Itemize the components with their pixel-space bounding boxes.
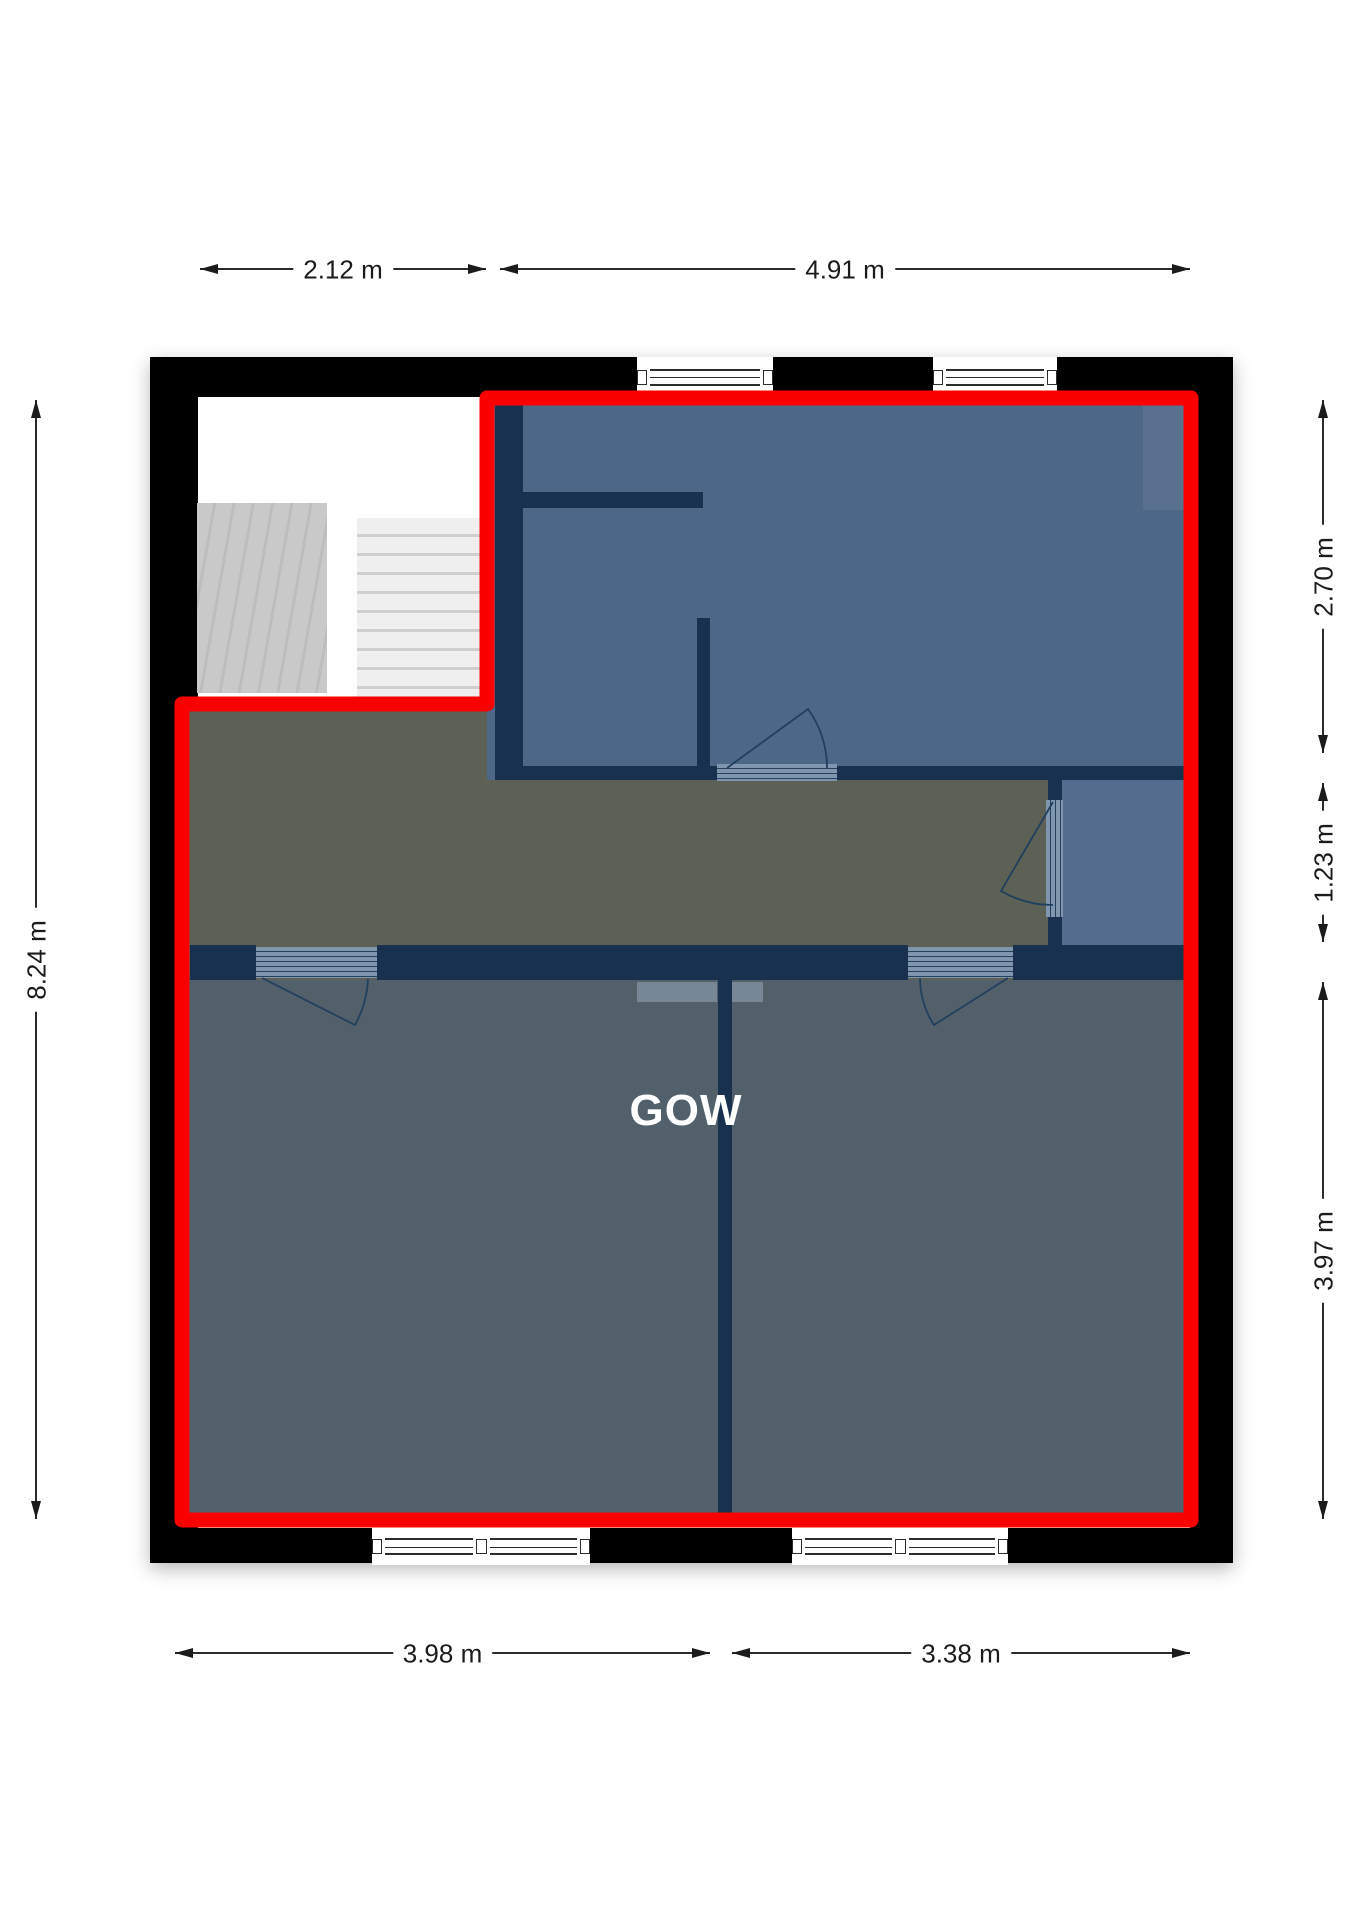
stairs-right-flight [357, 518, 480, 697]
wall-stub-vertical [697, 618, 710, 780]
window-glazing [946, 369, 1044, 386]
arrow-up-icon [1318, 783, 1328, 801]
wall-closet-left-top [1048, 780, 1062, 800]
arrow-left-icon [175, 1648, 193, 1658]
window-mullion [476, 1539, 487, 1554]
arrow-right-icon [1172, 264, 1190, 274]
arrow-right-icon [468, 264, 486, 274]
threshold-right [732, 982, 763, 1002]
arrow-left-icon [732, 1648, 750, 1658]
door-sill-upper-room [717, 764, 837, 781]
arrow-up-icon [31, 400, 41, 418]
dimension-label: 3.38 m [911, 1637, 1011, 1672]
arrow-right-icon [1172, 1648, 1190, 1658]
dimension-label: 3.97 m [1307, 1199, 1342, 1303]
window-top-2 [933, 357, 1057, 397]
wall-hall-bottom-seg3 [1013, 945, 1191, 980]
dimension-top-right: 4.91 m [500, 268, 1190, 270]
window-jamb [1047, 370, 1057, 385]
stairs-left-flight [197, 503, 327, 693]
arrow-left-icon [500, 264, 518, 274]
upper-room [487, 397, 1191, 780]
arrow-right-icon [692, 1648, 710, 1658]
dimension-right-upper: 2.70 m [1322, 400, 1324, 753]
dimension-right-middle: 1.23 m [1322, 783, 1324, 942]
floorplan-canvas: GOW 2.12 m 4.91 m 3.98 m 3.38 m 8.24 m 2… [0, 0, 1358, 1920]
window-glazing [385, 1538, 473, 1555]
wall-hall-bottom-seg2 [377, 945, 908, 980]
dimension-right-lower: 3.97 m [1322, 982, 1324, 1519]
arrow-down-icon [1318, 924, 1328, 942]
window-glazing [650, 369, 760, 386]
arrow-up-icon [1318, 400, 1328, 418]
threshold-left [637, 982, 717, 1002]
dimension-label: 4.91 m [795, 253, 895, 288]
closet-room [1062, 780, 1191, 945]
window-jamb [933, 370, 943, 385]
room-label: GOW [630, 1086, 743, 1136]
dimension-label: 1.23 m [1307, 811, 1342, 915]
wall-lower-rooms-divider [718, 980, 732, 1513]
door-sill-lower-right [908, 947, 1013, 978]
dimension-bottom-left: 3.98 m [175, 1652, 710, 1654]
dimension-bottom-right: 3.38 m [732, 1652, 1190, 1654]
dimension-label: 8.24 m [20, 908, 55, 1012]
wall-stub-horizontal [523, 492, 703, 508]
radiator-panel [1143, 405, 1187, 510]
window-jamb [763, 370, 773, 385]
window-jamb [580, 1539, 590, 1554]
wall-hall-bottom-seg1 [190, 945, 256, 980]
window-jamb [998, 1539, 1008, 1554]
lower-rooms [182, 980, 1191, 1520]
arrow-down-icon [1318, 1501, 1328, 1519]
window-top-1 [637, 357, 773, 397]
wall-upper-room-bottom-left [495, 766, 717, 780]
window-glazing [805, 1538, 892, 1555]
window-bottom-1 [372, 1528, 590, 1565]
wall-closet-left-bottom [1048, 917, 1062, 945]
door-sill-lower-left [256, 947, 377, 978]
dimension-left-total: 8.24 m [35, 400, 37, 1519]
arrow-up-icon [1318, 982, 1328, 1000]
wall-stairwell-side [495, 397, 523, 780]
dimension-label: 3.98 m [393, 1637, 493, 1672]
arrow-down-icon [1318, 735, 1328, 753]
arrow-left-icon [200, 264, 218, 274]
window-mullion [895, 1539, 906, 1554]
wall-upper-room-bottom-right [837, 766, 1191, 780]
door-sill-closet [1046, 800, 1063, 917]
window-jamb [372, 1539, 382, 1554]
window-glazing [909, 1538, 996, 1555]
window-jamb [637, 370, 647, 385]
dimension-label: 2.70 m [1307, 525, 1342, 629]
window-glazing [490, 1538, 578, 1555]
window-bottom-2 [792, 1528, 1008, 1565]
arrow-down-icon [31, 1501, 41, 1519]
dimension-label: 2.12 m [293, 253, 393, 288]
dimension-top-left: 2.12 m [200, 268, 486, 270]
window-jamb [792, 1539, 802, 1554]
